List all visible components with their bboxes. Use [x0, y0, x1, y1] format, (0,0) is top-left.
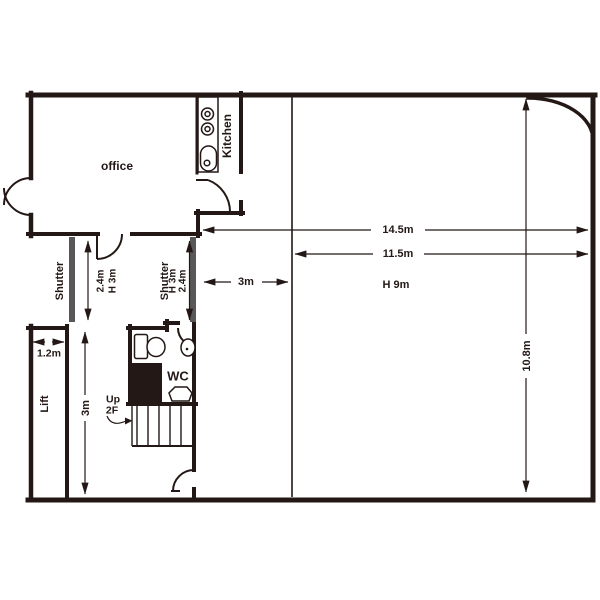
dim-shutter-left-height-label: H 3m: [108, 269, 119, 294]
dim-main-depth-label: 10.8m: [521, 340, 533, 371]
dim-corridor-width-label: 3m: [238, 276, 254, 288]
stove-burner-inner-icon: [205, 127, 210, 132]
dim-lift-depth-label: 3m: [80, 400, 92, 416]
dim-main-width-label: 11.5m: [383, 248, 414, 260]
stairs-treads: [137, 405, 181, 445]
shutter-left-label: Shutter: [54, 261, 66, 300]
dim-lift-width-label: 1.2m: [37, 348, 61, 360]
toilet-bowl-icon: [147, 338, 165, 357]
dim-shutter-left-width-label: 2.4m: [96, 269, 107, 292]
hand-basin-drain-icon: [186, 348, 189, 351]
office-door-arc: [97, 234, 122, 259]
stair-hall-door-arc: [173, 470, 194, 491]
kitchen-sink-drain-icon: [204, 160, 210, 166]
kitchen-sink-icon: [201, 146, 217, 171]
kitchen-door-arc: [208, 180, 230, 212]
dim-overall-width-label: 14.5m: [382, 224, 413, 236]
stairs-floor-label: 2F: [106, 405, 119, 417]
kitchen-label: Kitchen: [220, 114, 234, 158]
stairs: [107, 404, 194, 446]
kitchen-fixtures: [198, 97, 218, 172]
lift-label: Lift: [39, 395, 51, 412]
urinal-icon: [169, 387, 192, 401]
dim-ceiling-height-label: H 9m: [383, 279, 410, 291]
outer-walls: [28, 93, 595, 500]
floor-plan-drawing: office Kitchen Shutter Shutter Lift WC U…: [0, 0, 600, 600]
office-label: office: [101, 159, 133, 173]
floor-plan-page: office Kitchen Shutter Shutter Lift WC U…: [0, 0, 600, 600]
hand-basin-icon: [181, 339, 195, 356]
toilet-tank-icon: [135, 335, 148, 359]
shaft-block: [131, 363, 162, 403]
wc-label: WC: [167, 369, 189, 384]
stairs-up-arrow: [107, 416, 126, 423]
stove-burner-inner-icon: [205, 112, 210, 117]
dim-shutter-right-width-label: 2.4m: [178, 269, 189, 292]
curved-corner-wall: [528, 98, 593, 140]
labels: office Kitchen Shutter Shutter Lift WC U…: [37, 114, 533, 417]
